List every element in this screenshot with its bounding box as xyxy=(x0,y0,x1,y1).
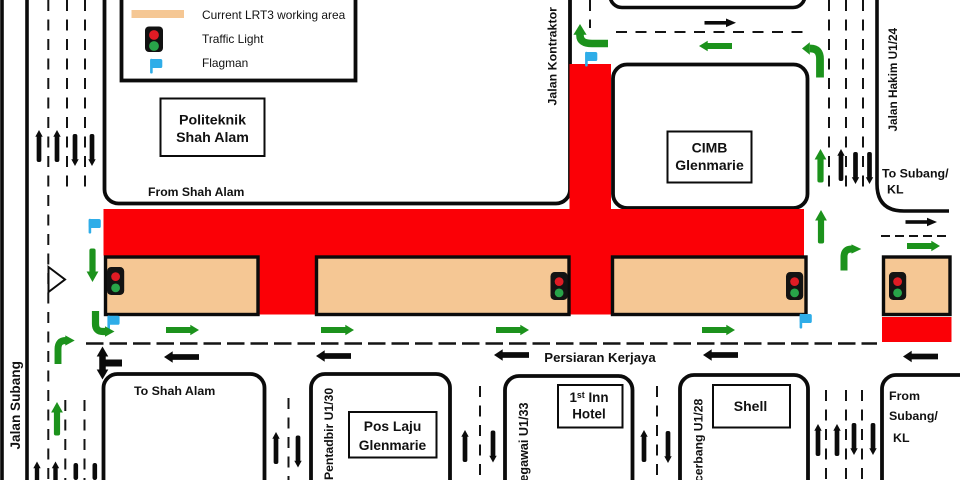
svg-text:Politeknik: Politeknik xyxy=(179,113,246,129)
svg-text:From: From xyxy=(889,389,920,403)
svg-text:To Subang/: To Subang/ xyxy=(882,167,949,181)
svg-text:Pentadbir U1/30: Pentadbir U1/30 xyxy=(322,388,336,480)
svg-text:Subang/: Subang/ xyxy=(889,409,938,423)
svg-text:Hotel: Hotel xyxy=(572,407,605,422)
svg-text:Shell: Shell xyxy=(734,398,767,414)
svg-text:Glenmarie: Glenmarie xyxy=(675,157,744,173)
svg-text:Pos Laju: Pos Laju xyxy=(364,419,422,434)
svg-text:Jalan Subang: Jalan Subang xyxy=(8,361,23,449)
svg-text:Traffic Light: Traffic Light xyxy=(202,32,264,46)
svg-text:cerbang U1/28: cerbang U1/28 xyxy=(692,398,706,480)
svg-text:Shah Alam: Shah Alam xyxy=(176,130,249,146)
svg-text:Jalan Kontraktor: Jalan Kontraktor xyxy=(546,7,560,106)
svg-text:To Shah Alam: To Shah Alam xyxy=(134,384,215,398)
svg-text:Glenmarie: Glenmarie xyxy=(359,438,427,453)
svg-text:Flagman: Flagman xyxy=(202,56,248,70)
svg-text:KL: KL xyxy=(887,183,904,197)
svg-text:From Shah Alam: From Shah Alam xyxy=(148,185,245,199)
svg-text:KL: KL xyxy=(893,431,910,445)
svg-text:Persiaran Kerjaya: Persiaran Kerjaya xyxy=(544,350,656,365)
svg-text:Current LRT3 working area: Current LRT3 working area xyxy=(202,8,346,22)
svg-text:1st Inn: 1st Inn xyxy=(569,390,608,405)
svg-text:CIMB: CIMB xyxy=(692,140,728,156)
svg-text:Pegawai U1/33: Pegawai U1/33 xyxy=(517,402,531,480)
svg-text:Jalan Hakim U1/24: Jalan Hakim U1/24 xyxy=(886,27,900,131)
